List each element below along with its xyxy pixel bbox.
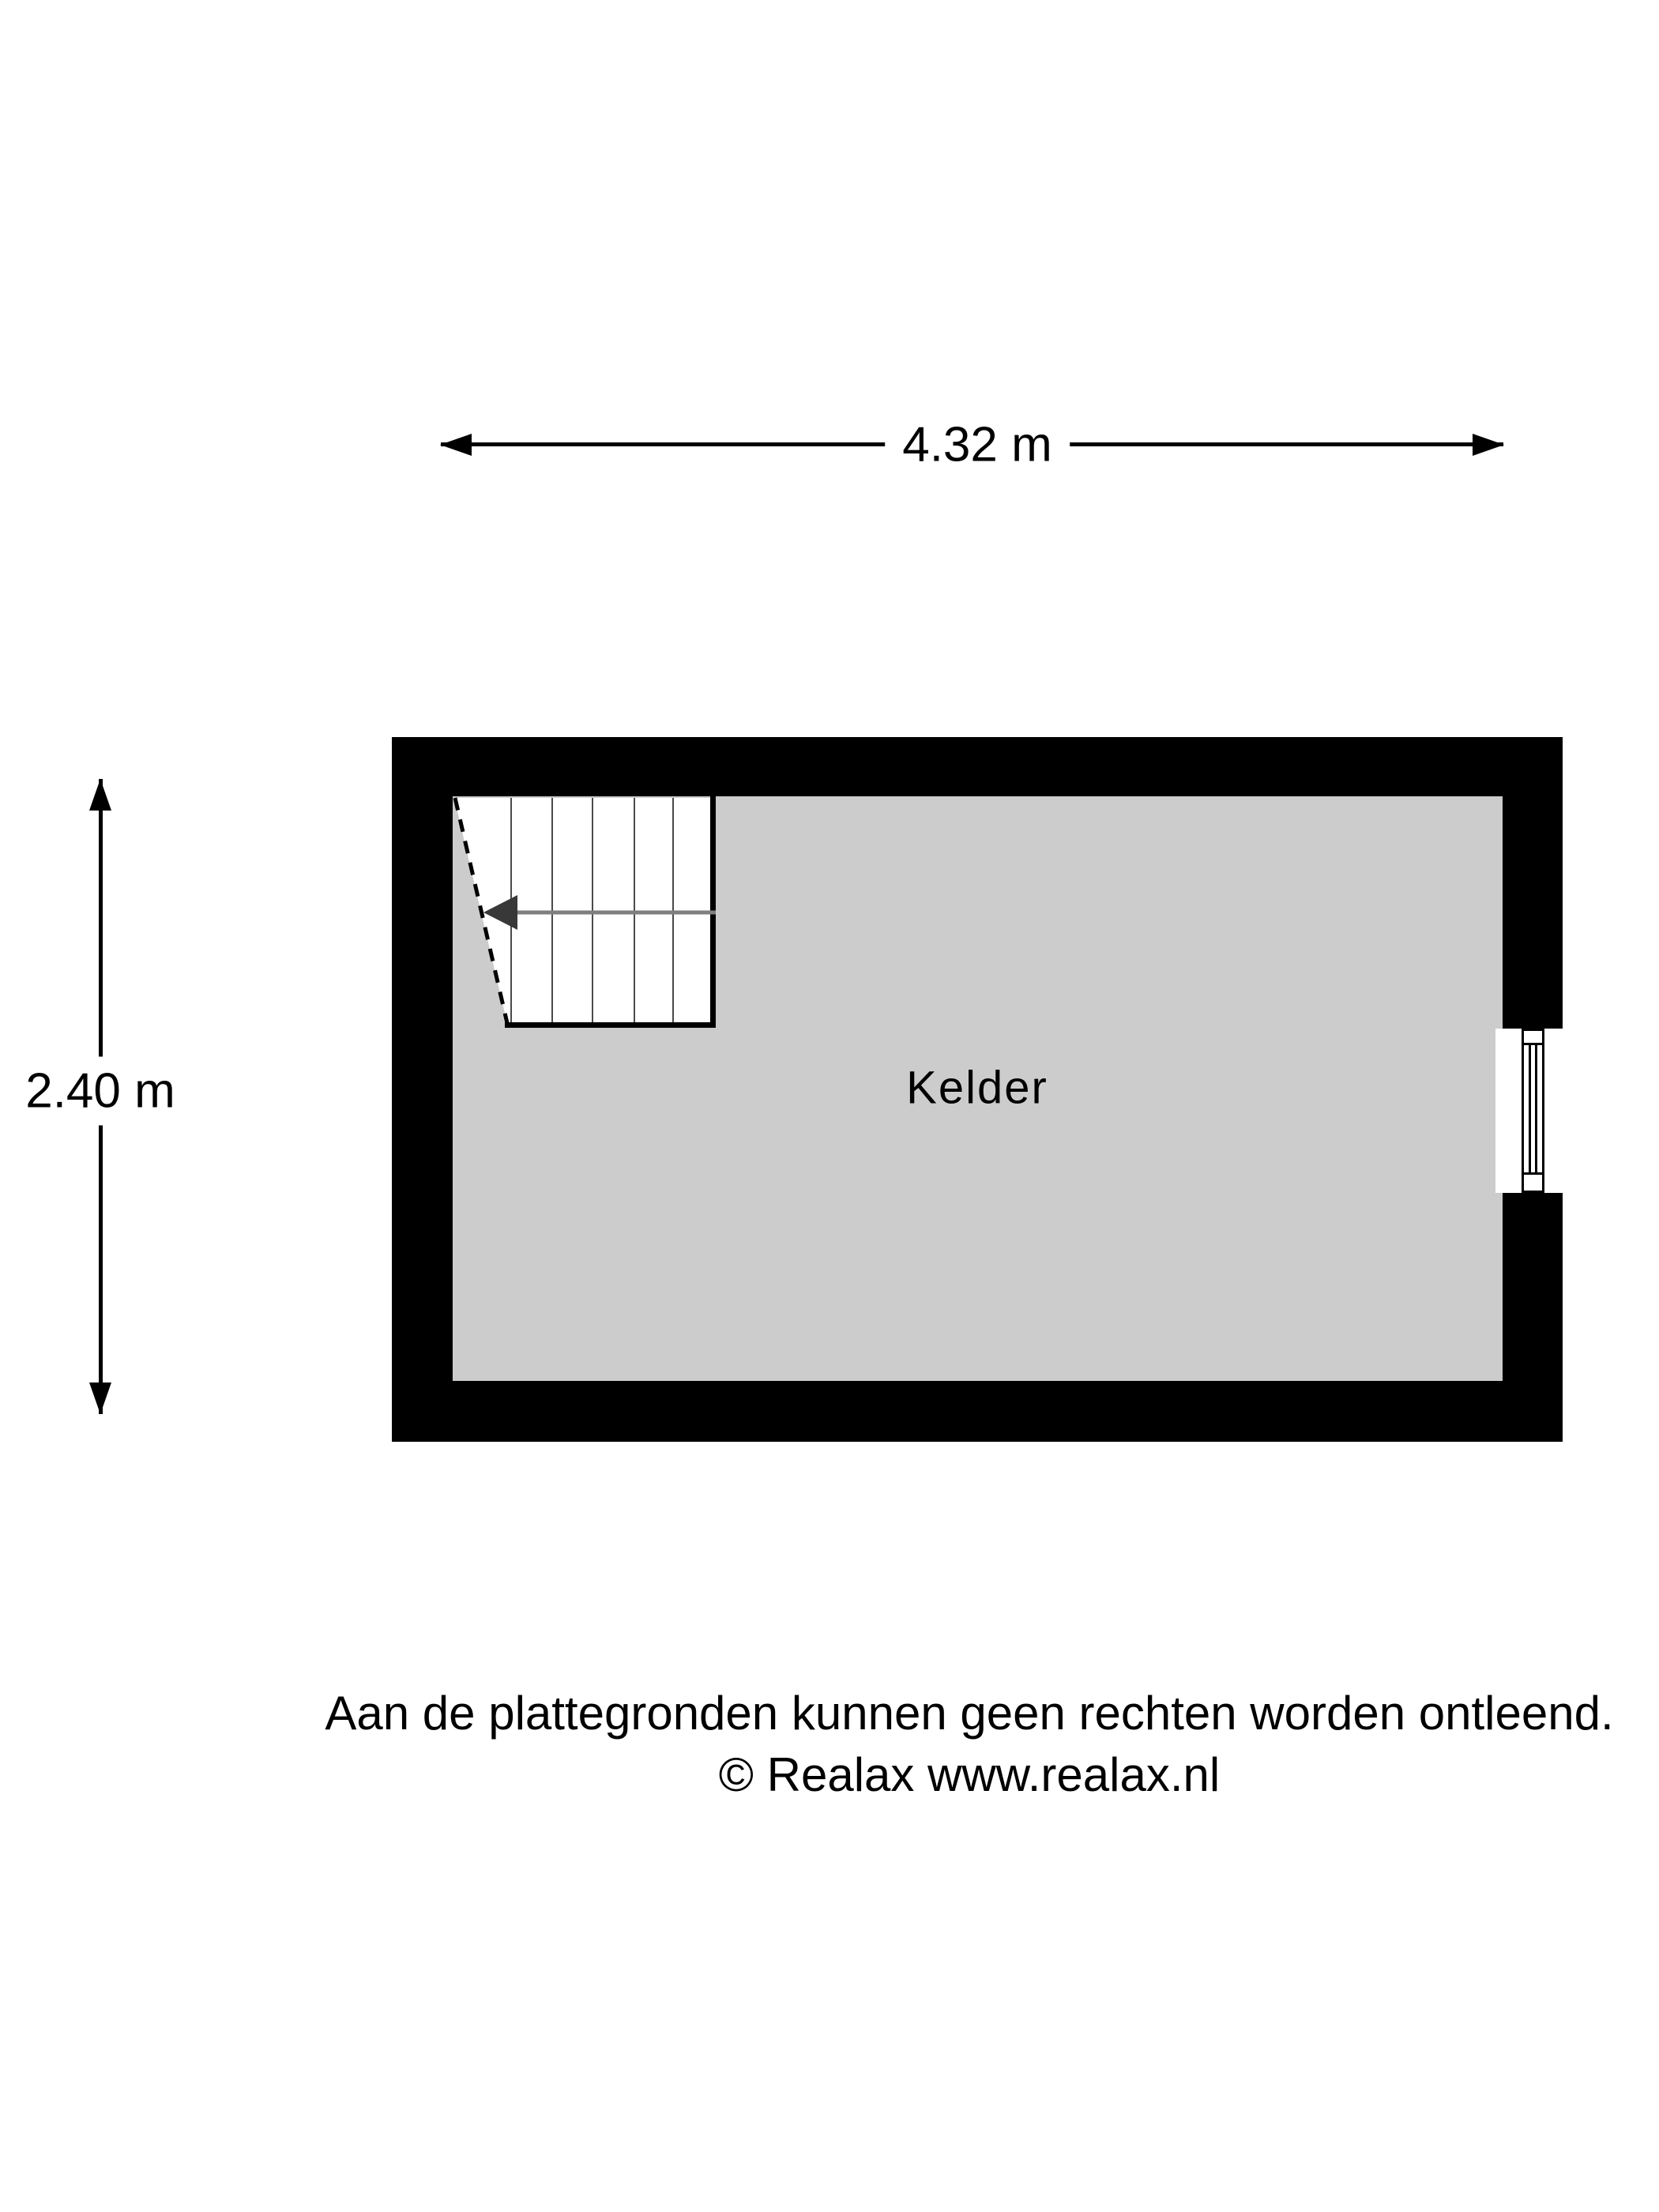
copyright-text: © Realax www.realax.nl xyxy=(325,1744,1613,1806)
window-frame-cap-bottom xyxy=(1522,1172,1544,1175)
height-dimension-label: 2.40 m xyxy=(24,1057,177,1126)
footer-disclaimer: Aan de plattegronden kunnen geen rechten… xyxy=(325,1683,1613,1806)
room-label: Kelder xyxy=(906,1062,1048,1115)
arrowhead-right-icon xyxy=(1473,434,1504,456)
width-dimension-label: 4.32 m xyxy=(885,417,1070,473)
stairs xyxy=(453,796,721,1033)
disclaimer-text: Aan de plattegronden kunnen geen rechten… xyxy=(325,1683,1613,1744)
window-glass-line xyxy=(1535,1045,1537,1172)
arrowhead-down-icon xyxy=(89,1382,111,1414)
arrowhead-up-icon xyxy=(89,779,111,811)
window-frame xyxy=(1522,1029,1544,1193)
arrowhead-left-icon xyxy=(440,434,472,456)
stairs-bottom-edge xyxy=(505,1022,716,1028)
window-glass-line xyxy=(1529,1045,1531,1172)
window-frame-cap-top xyxy=(1522,1043,1544,1045)
